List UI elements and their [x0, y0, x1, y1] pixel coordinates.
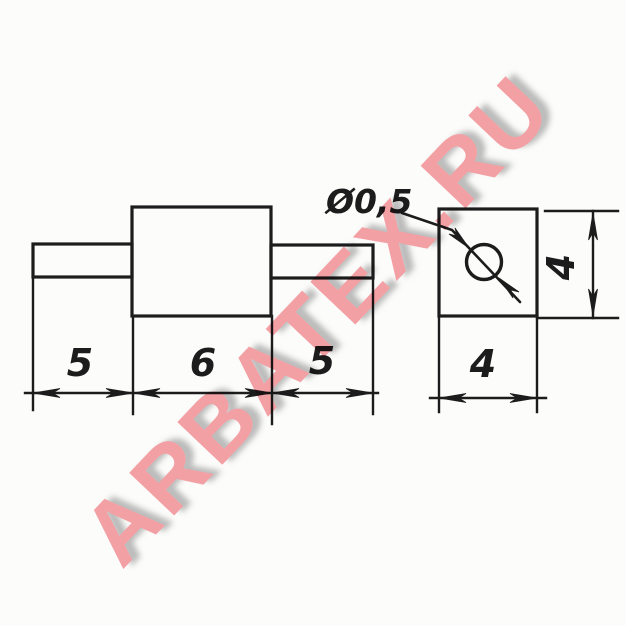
dim-label-wire-diameter: Ø0,5 [324, 182, 413, 221]
diameter-arrow-lower [499, 278, 519, 298]
end-view-outline [439, 209, 537, 316]
end-view: Ø0,5 4 4 [324, 182, 618, 412]
dim-label-lead-right: 5 [309, 339, 335, 383]
front-view: 5 6 5 [25, 207, 378, 424]
dim-label-width: 4 [469, 342, 496, 386]
dim-label-lead-left: 5 [67, 341, 93, 385]
dim-label-height: 4 [539, 254, 583, 281]
scanned-technical-drawing: 5 6 5 Ø0,5 4 4 [0, 0, 626, 626]
dim-label-body-length: 6 [190, 341, 216, 385]
lead-right-outline [271, 245, 373, 278]
component-dimension-drawing: 5 6 5 Ø0,5 4 4 [0, 0, 626, 626]
lead-left-outline [33, 244, 132, 277]
component-body-outline [132, 207, 271, 316]
